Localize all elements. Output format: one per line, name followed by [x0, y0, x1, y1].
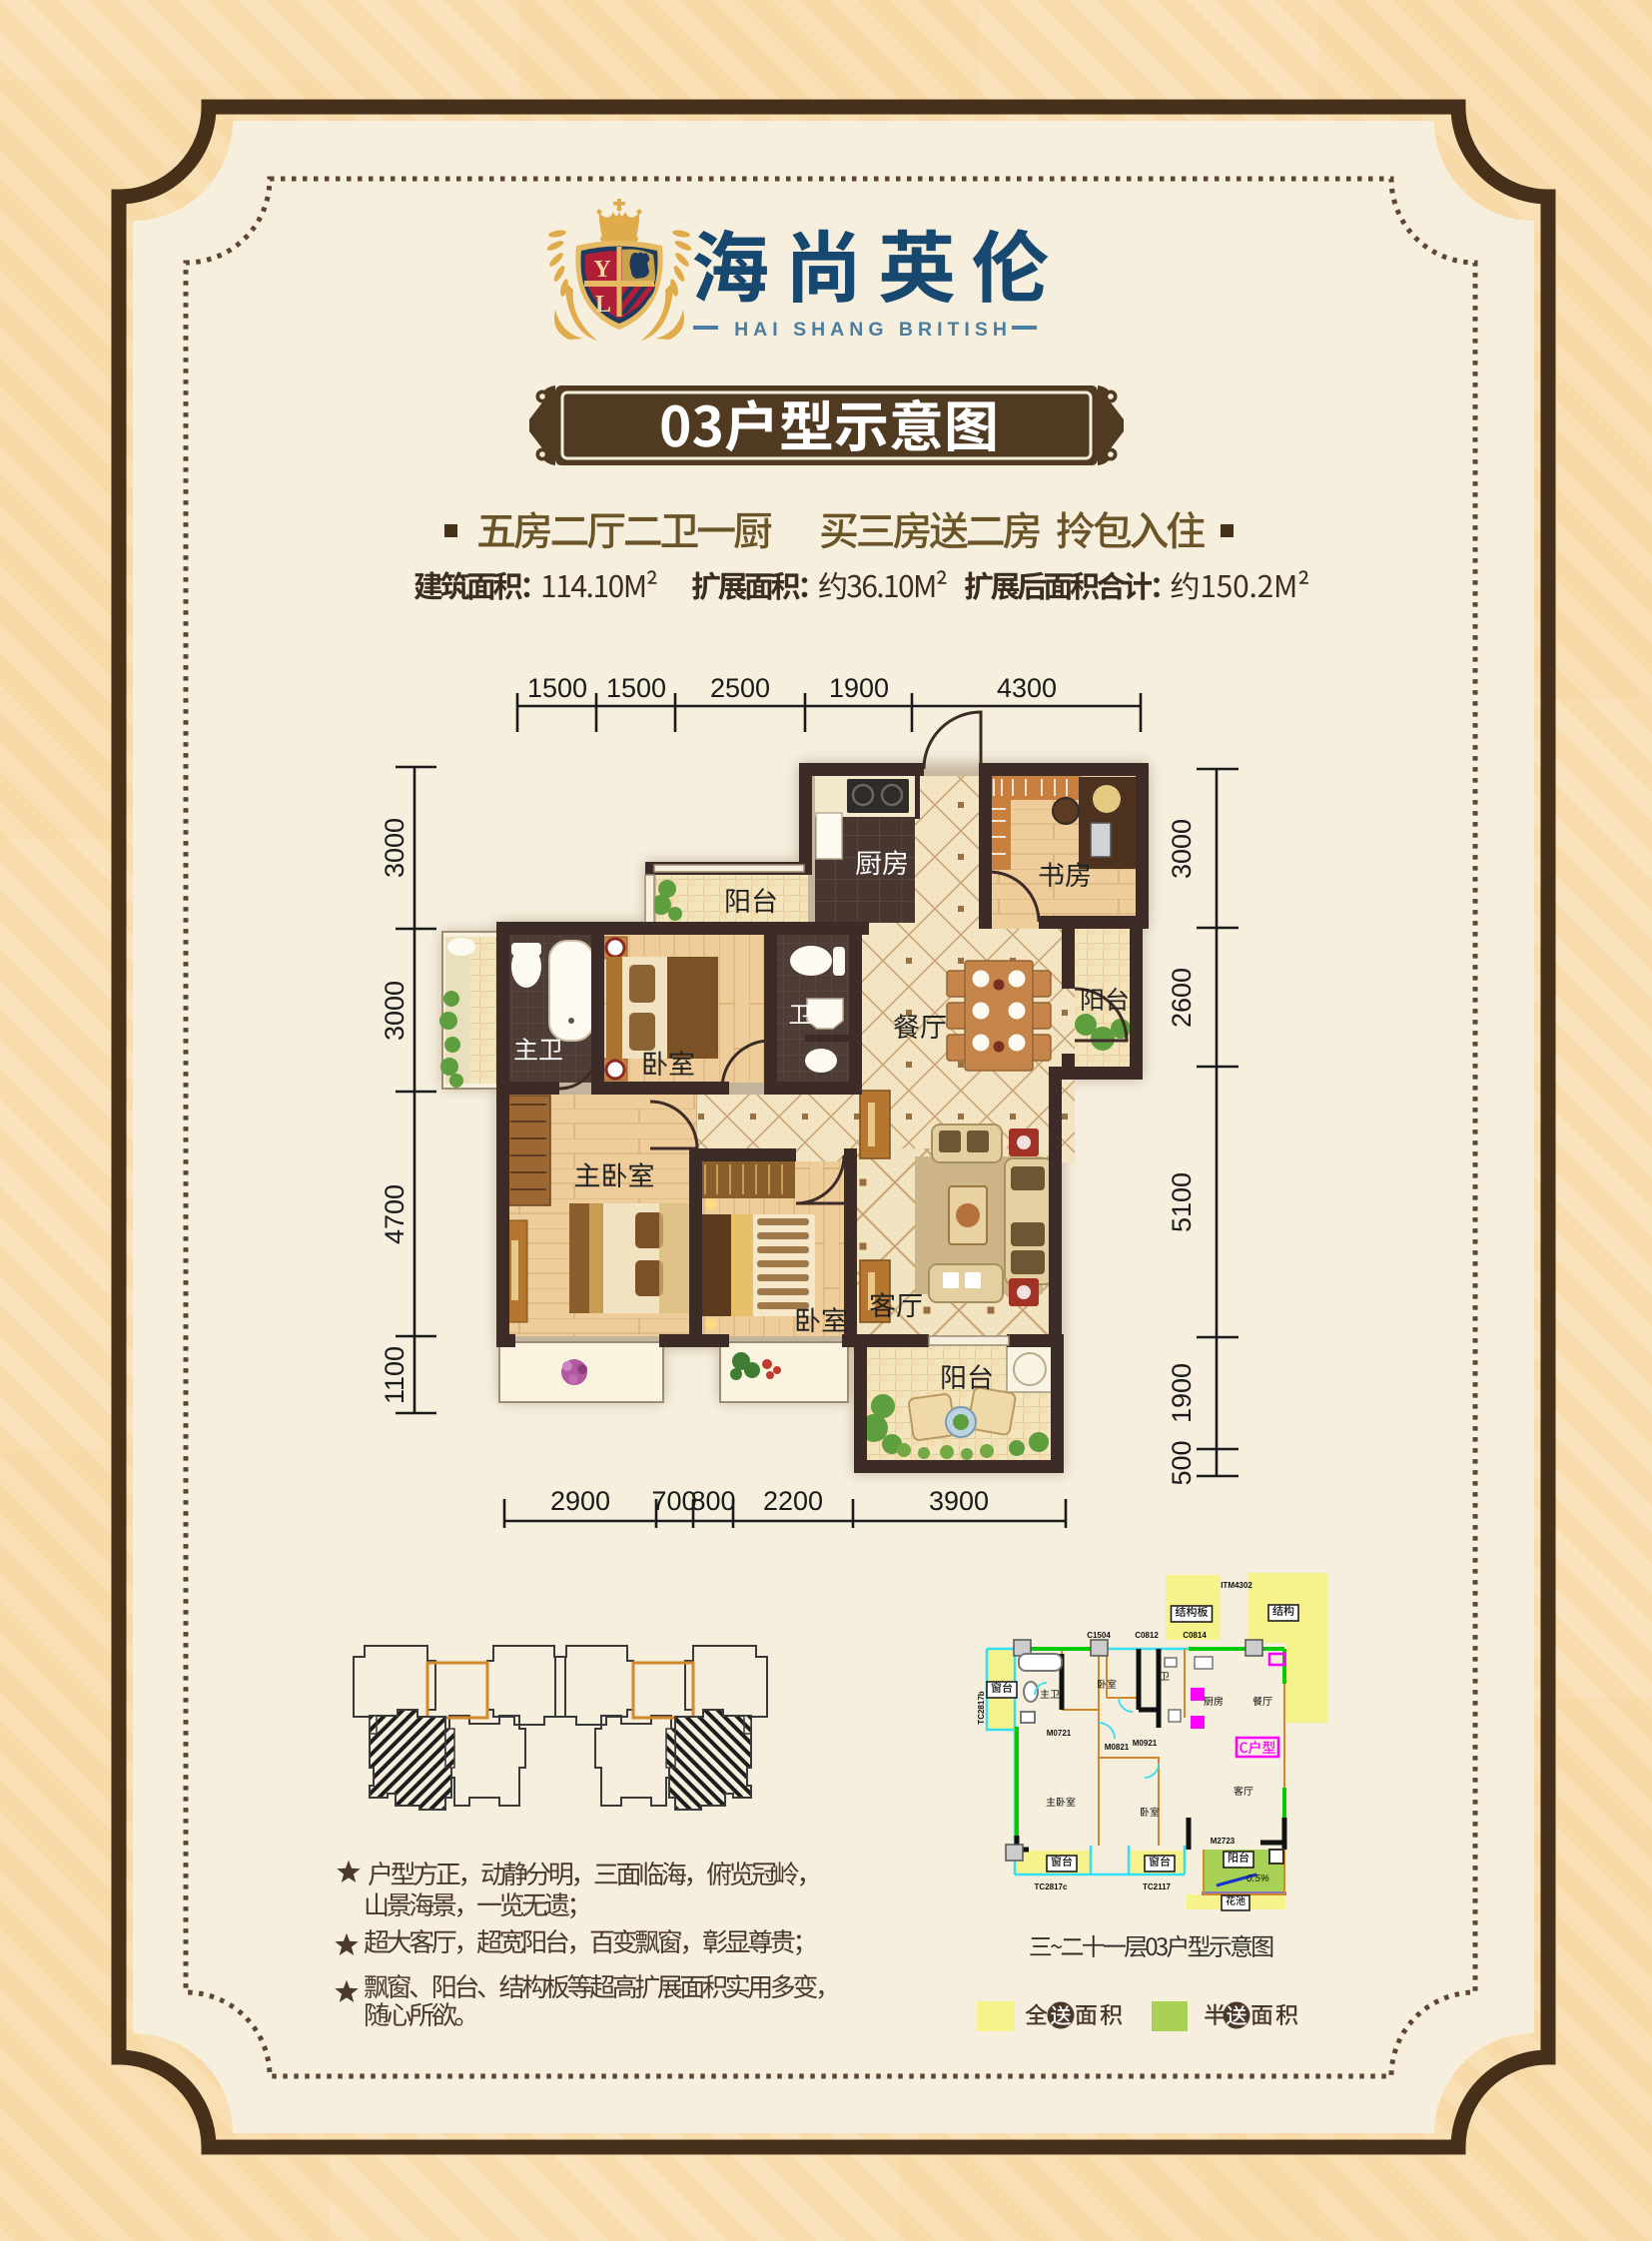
svg-text:800: 800: [690, 1486, 735, 1516]
svg-text:TC2817b: TC2817b: [977, 1691, 986, 1724]
svg-text:500: 500: [1167, 1440, 1197, 1485]
svg-text:3900: 3900: [929, 1486, 989, 1516]
svg-text:2200: 2200: [763, 1486, 823, 1516]
svg-text:C0814: C0814: [1183, 1631, 1207, 1640]
svg-text:2500: 2500: [710, 673, 770, 703]
svg-text:M0821: M0821: [1105, 1743, 1130, 1752]
svg-text:M2723: M2723: [1211, 1837, 1236, 1846]
svg-text:5100: 5100: [1167, 1172, 1197, 1232]
svg-text:1900: 1900: [1167, 1363, 1197, 1423]
svg-text:M0721: M0721: [1047, 1729, 1072, 1738]
svg-text:TC2817c: TC2817c: [1035, 1882, 1068, 1891]
svg-text:C0812: C0812: [1135, 1631, 1159, 1640]
svg-text:0.5%: 0.5%: [1246, 1873, 1269, 1884]
svg-text:3000: 3000: [380, 981, 410, 1041]
svg-text:C1504: C1504: [1087, 1631, 1111, 1640]
svg-text:1100: 1100: [380, 1346, 410, 1404]
svg-text:4700: 4700: [380, 1184, 410, 1244]
svg-text:ITM4302: ITM4302: [1221, 1581, 1252, 1590]
svg-text:L: L: [595, 292, 611, 318]
svg-text:M0921: M0921: [1133, 1739, 1158, 1748]
svg-text:2900: 2900: [550, 1486, 610, 1516]
svg-text:1500: 1500: [606, 673, 666, 703]
svg-text:3000: 3000: [1167, 819, 1197, 879]
svg-text:4300: 4300: [997, 673, 1057, 703]
svg-text:1900: 1900: [829, 673, 889, 703]
svg-text:3000: 3000: [380, 818, 410, 878]
svg-text:HAI SHANG BRITISH: HAI SHANG BRITISH: [734, 319, 1012, 341]
svg-text:Y: Y: [593, 257, 610, 283]
svg-text:1500: 1500: [527, 673, 587, 703]
svg-text:TC2117: TC2117: [1143, 1882, 1172, 1891]
svg-text:2600: 2600: [1167, 968, 1197, 1028]
